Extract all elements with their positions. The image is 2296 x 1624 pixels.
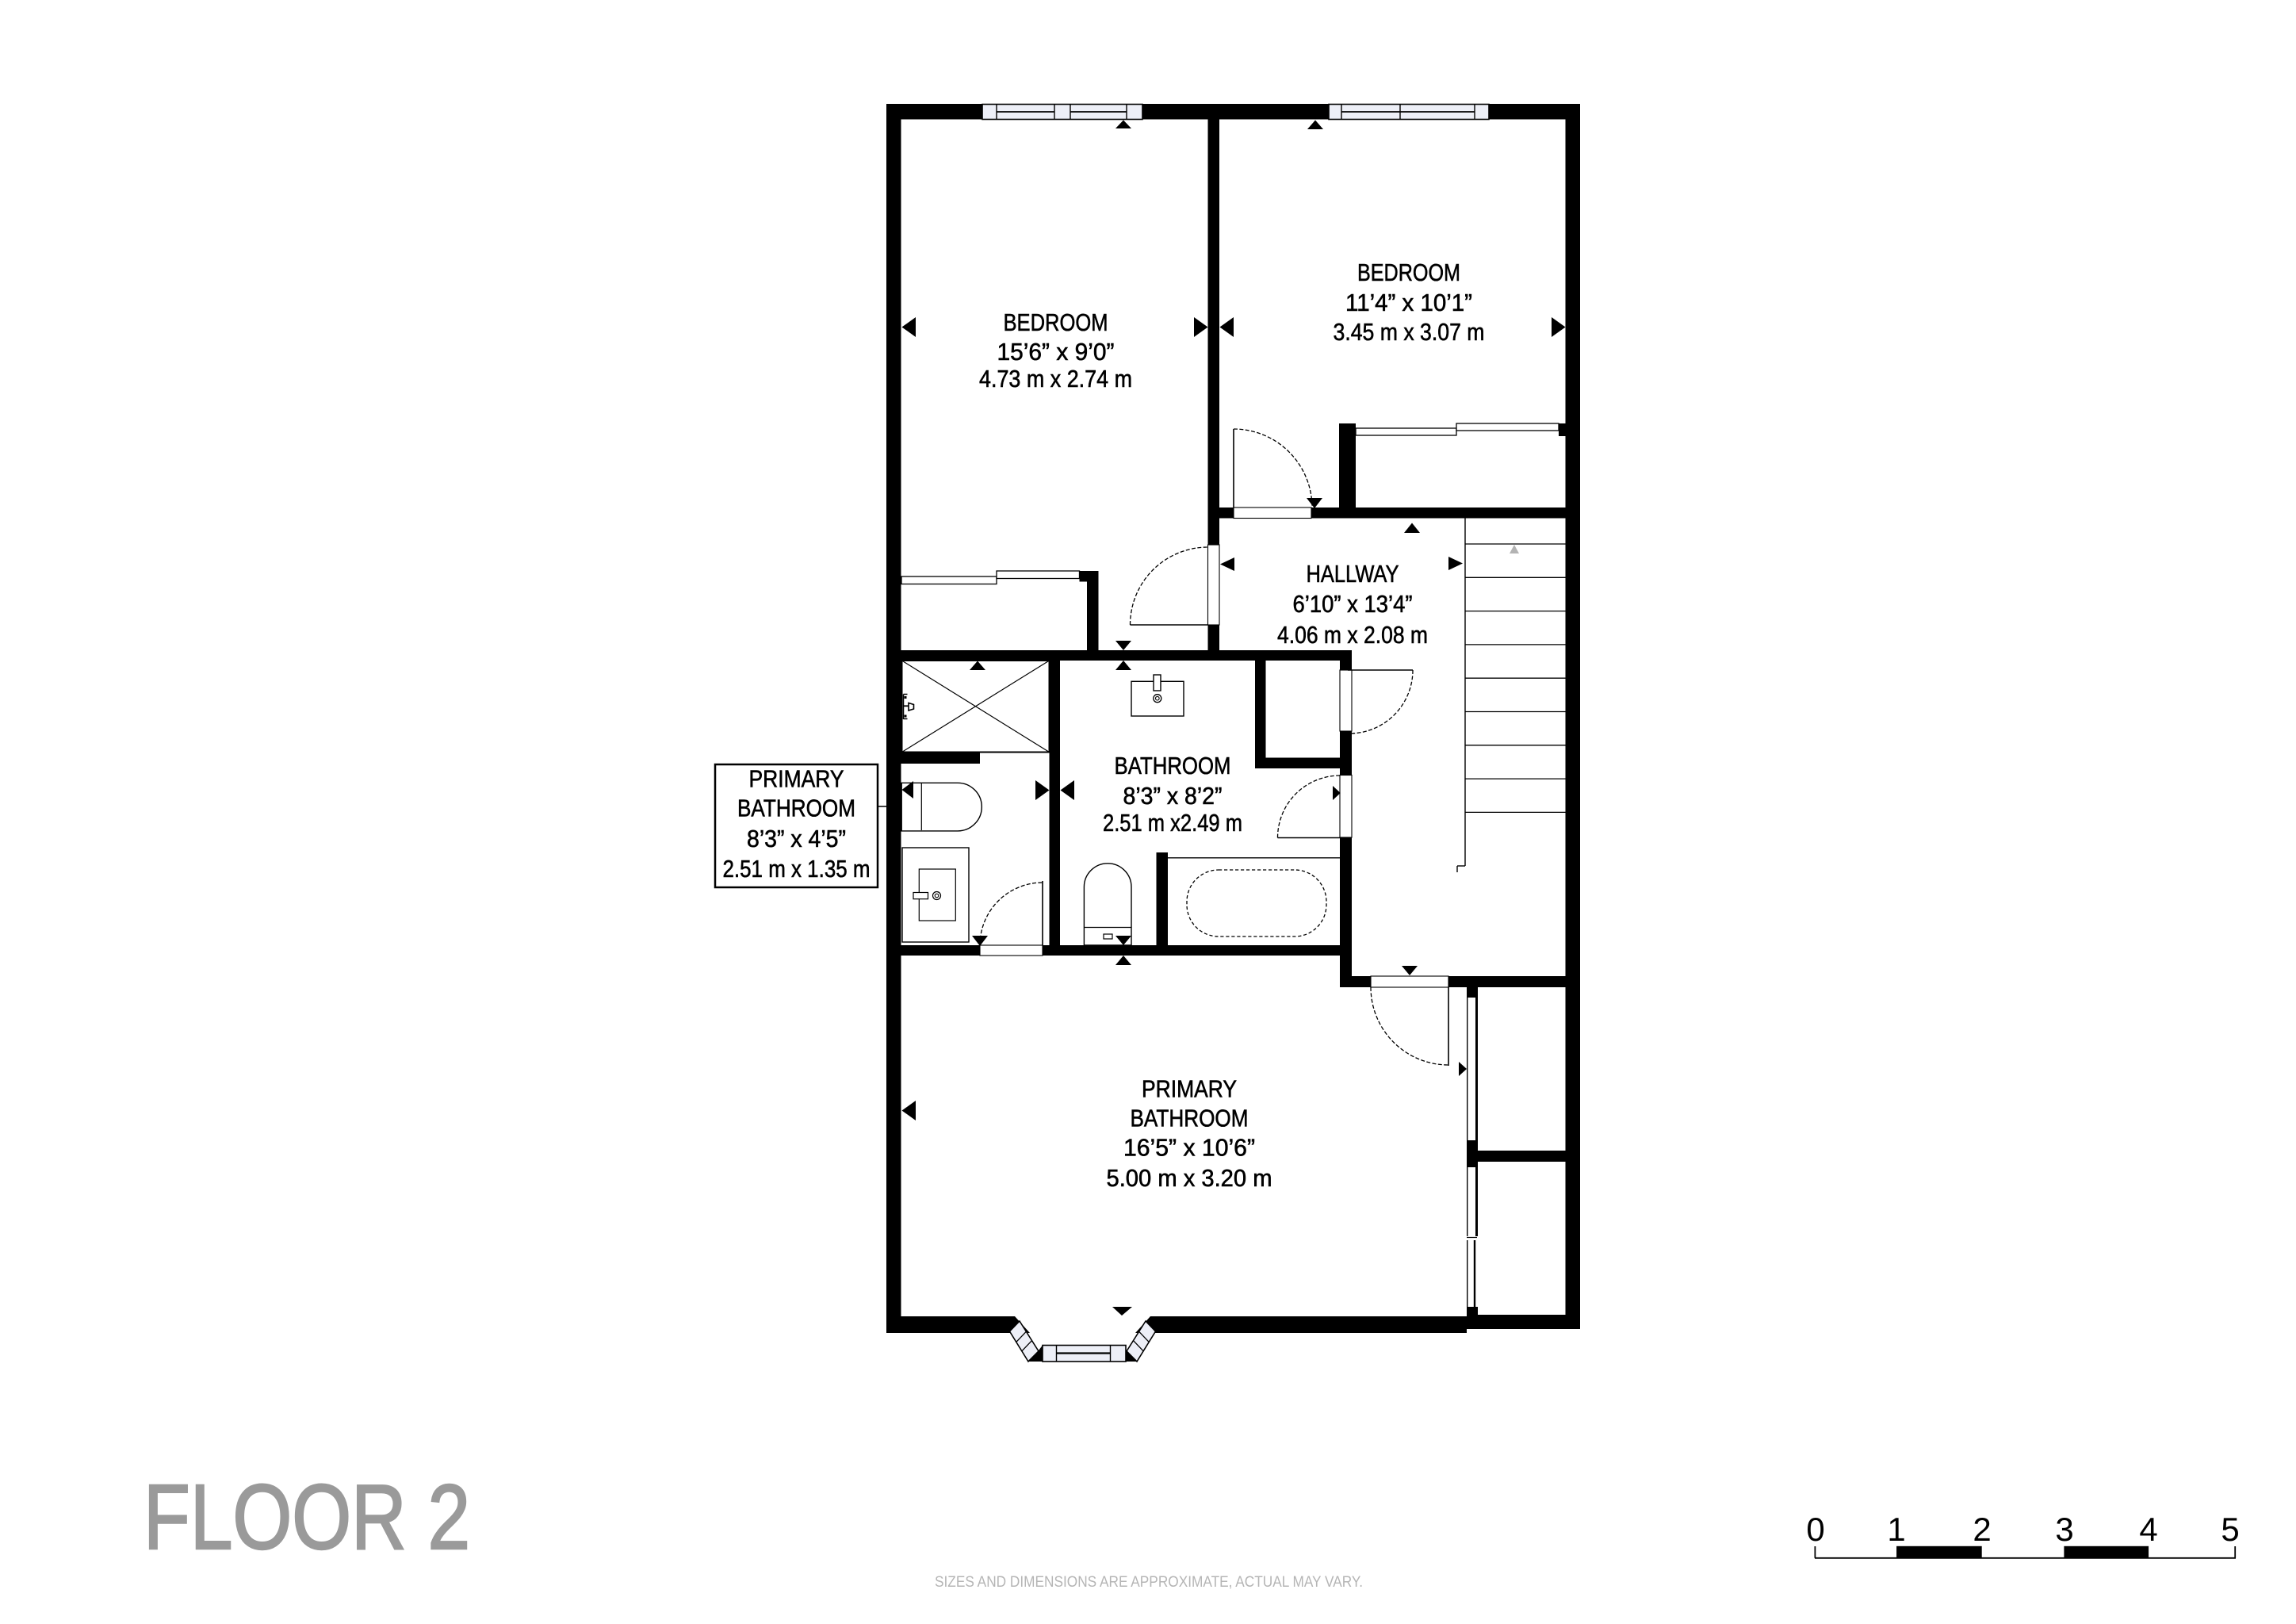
svg-text:16’5” x 10’6”: 16’5” x 10’6” (1123, 1134, 1255, 1162)
svg-text:8’3” x 4’5”: 8’3” x 4’5” (747, 825, 846, 852)
svg-text:5: 5 (2221, 1511, 2239, 1548)
svg-text:BEDROOM: BEDROOM (1004, 308, 1108, 336)
svg-text:2.51 m x 1.35 m: 2.51 m x 1.35 m (723, 855, 871, 883)
svg-text:4.73 m x 2.74 m: 4.73 m x 2.74 m (979, 365, 1132, 393)
svg-text:4.06 m x 2.08 m: 4.06 m x 2.08 m (1277, 621, 1428, 649)
svg-text:SIZES AND DIMENSIONS ARE APPRO: SIZES AND DIMENSIONS ARE APPROXIMATE, AC… (935, 1574, 1363, 1591)
svg-text:3: 3 (2055, 1511, 2073, 1548)
svg-text:4: 4 (2139, 1511, 2157, 1548)
svg-text:0: 0 (1806, 1511, 1824, 1548)
svg-text:15’6” x 9’0”: 15’6” x 9’0” (997, 338, 1115, 366)
svg-text:2.51 m x2.49 m: 2.51 m x2.49 m (1103, 809, 1242, 837)
svg-text:BATHROOM: BATHROOM (1115, 752, 1231, 779)
svg-text:8’3” x 8’2”: 8’3” x 8’2” (1123, 782, 1223, 810)
svg-text:PRIMARY: PRIMARY (1142, 1075, 1237, 1103)
svg-text:PRIMARY: PRIMARY (749, 765, 844, 793)
svg-text:6’10” x 13’4”: 6’10” x 13’4” (1293, 590, 1413, 618)
svg-text:5.00 m x 3.20 m: 5.00 m x 3.20 m (1107, 1164, 1272, 1192)
svg-text:3.45 m x 3.07 m: 3.45 m x 3.07 m (1334, 318, 1485, 346)
svg-text:BATHROOM: BATHROOM (1131, 1105, 1249, 1132)
svg-text:BATHROOM: BATHROOM (737, 795, 855, 822)
svg-text:11’4” x 10’1”: 11’4” x 10’1” (1345, 289, 1472, 316)
svg-text:HALLWAY: HALLWAY (1307, 560, 1399, 588)
svg-text:2: 2 (1973, 1511, 1991, 1548)
svg-text:1: 1 (1887, 1511, 1905, 1548)
svg-text:BEDROOM: BEDROOM (1357, 259, 1460, 286)
svg-text:FLOOR 2: FLOOR 2 (143, 1465, 470, 1568)
